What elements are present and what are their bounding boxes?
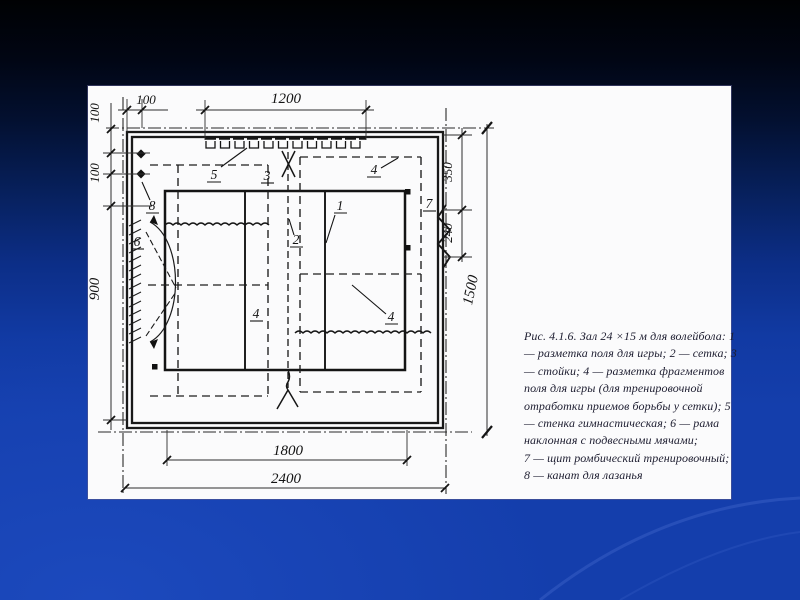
axis-centerlines: [98, 97, 494, 494]
callout-inclined-frame: 6: [134, 234, 141, 249]
caption-line: 8 — канат для лазанья: [524, 467, 752, 484]
hall-wall-outline: [127, 132, 443, 428]
dim-label-right-top: 350: [440, 162, 455, 183]
figure-panel: 100 1200 100 100 900 350 240 1500 1800 2…: [88, 86, 731, 499]
dim-label-top-offset: 100: [136, 92, 156, 107]
caption-line: Рис. 4.1.6. Зал 24 ×15 м для волейбола: …: [524, 328, 752, 345]
fragment-marking-lines: [148, 157, 421, 396]
dimension-lines: [103, 99, 487, 488]
caption-line: поля для игры (для тренировочной: [524, 380, 752, 397]
dim-label-hall-length: 2400: [271, 471, 302, 487]
dim-label-left-offset-a: 100: [88, 103, 102, 123]
dim-label-hall-width: 1500: [460, 273, 482, 306]
dim-label-gym-wall-width: 1200: [271, 91, 302, 107]
callout-gym-wall: 5: [211, 167, 218, 182]
callout-fragment-marking-right: 4: [388, 309, 395, 324]
caption-line: наклонная с подвесными мячами;: [524, 432, 752, 449]
caption-line: 7 — щит ромбический тренировочный;: [524, 450, 752, 467]
callout-fragment-marking-top: 4: [371, 162, 378, 177]
callout-fragment-marking-left: 4: [253, 306, 260, 321]
callout-climbing-rope: 8: [149, 198, 156, 213]
dim-label-right-mid: 240: [440, 223, 455, 243]
callout-net: 2: [293, 232, 300, 247]
callout-rhombic-shield: 7: [426, 196, 434, 211]
callout-posts: 3: [263, 168, 271, 183]
dim-label-left-height: 900: [88, 277, 103, 300]
figure-caption: Рис. 4.1.6. Зал 24 ×15 м для волейбола: …: [524, 328, 752, 485]
dim-label-left-offset-b: 100: [88, 163, 102, 183]
callout-court-marking: 1: [337, 198, 344, 213]
court-outline: [165, 191, 405, 370]
caption-line: отработки приемов борьбы у сетки); 5: [524, 398, 752, 415]
caption-line: — разметка поля для игры; 2 — сетка; 3: [524, 345, 752, 362]
caption-line: — стенка гимнастическая; 6 — рама: [524, 415, 752, 432]
gym-wall-symbol: [205, 138, 366, 148]
dim-label-bottom-inner: 1800: [273, 443, 304, 459]
caption-line: — стойки; 4 — разметка фрагментов: [524, 363, 752, 380]
